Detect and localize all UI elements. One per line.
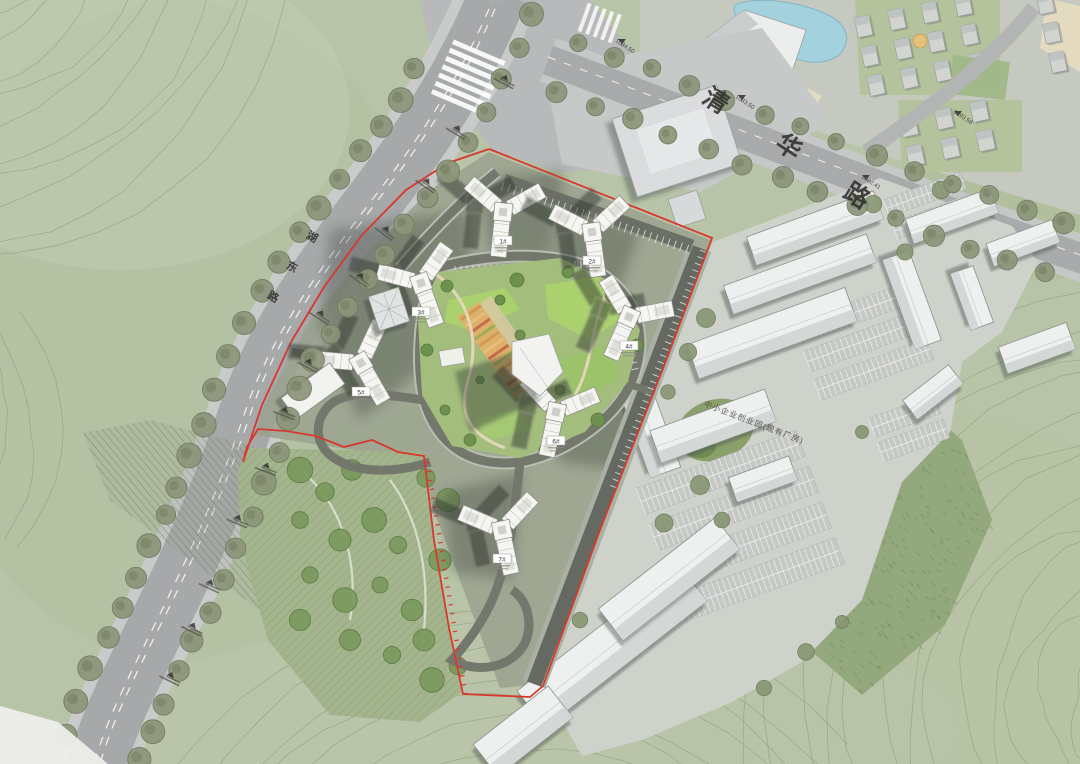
boundary-tick — [443, 569, 447, 570]
tower-id-label: 2# — [588, 259, 596, 266]
tower-core-roof — [497, 525, 506, 534]
boundary-tick — [430, 489, 434, 490]
tree-shade — [184, 633, 194, 643]
boundary-tick — [441, 560, 445, 561]
tower-micro-text — [415, 321, 427, 322]
tree-icon — [798, 644, 815, 661]
tree-shade — [810, 185, 819, 194]
tree-icon — [292, 512, 309, 529]
tree-shade — [626, 112, 635, 121]
boundary-tick — [448, 604, 452, 605]
boundary-tick — [457, 658, 461, 659]
site-plan-canvas: 1#2#3#4#5#6#7# 清 华 路 湖 东 路 中小企业创业园(现有厂房)… — [0, 0, 1080, 764]
master-plan-map: 1#2#3#4#5#6#7# 清 华 路 湖 东 路 中小企业创业园(现有厂房)… — [0, 0, 1080, 764]
tree-icon — [389, 536, 406, 553]
tree-shade — [662, 129, 670, 137]
tree-shade — [964, 243, 972, 251]
tree-shade — [271, 255, 281, 265]
tree-shade — [890, 213, 897, 220]
tree-icon — [413, 629, 435, 651]
tree-icon — [464, 434, 476, 446]
tree-shade — [589, 101, 597, 109]
tree-shade — [983, 189, 991, 197]
tree-icon — [316, 483, 334, 501]
tower-wing — [462, 211, 482, 249]
tree-shade — [129, 571, 139, 581]
tree-icon — [591, 413, 605, 427]
tree-icon — [329, 529, 351, 551]
tower-micro-text — [496, 568, 508, 569]
tree-icon — [362, 508, 387, 533]
tree-shade — [646, 63, 654, 71]
tree-shade — [869, 149, 879, 159]
tree-icon — [340, 630, 361, 651]
tree-icon — [287, 457, 313, 483]
tree-shade — [144, 724, 155, 735]
tree-shade — [759, 109, 767, 117]
tree-icon — [420, 668, 445, 693]
tree-icon — [897, 244, 913, 260]
tree-shade — [908, 165, 917, 174]
tower-id-label: 6# — [552, 439, 560, 446]
boundary-tick — [438, 542, 442, 543]
tree-shade — [735, 158, 744, 167]
boundary-tick — [425, 462, 429, 463]
tree-icon — [421, 344, 433, 356]
tree-shade — [340, 301, 349, 310]
tree-icon — [441, 280, 453, 292]
tree-icon — [333, 588, 358, 613]
tree-shade — [115, 601, 125, 611]
tree-shade — [217, 573, 226, 582]
tree-shade — [333, 173, 342, 182]
tree-icon — [679, 343, 696, 360]
tree-shade — [206, 382, 216, 392]
tree-shade — [513, 42, 522, 51]
tree-shade — [1020, 204, 1029, 213]
tree-icon — [510, 273, 524, 287]
tree-shade — [67, 694, 78, 705]
tree-shade — [272, 446, 281, 455]
tree-shade — [169, 481, 179, 491]
tree-icon — [855, 425, 868, 438]
tree-shade — [247, 510, 256, 519]
boundary-tick — [444, 578, 448, 579]
tree-shade — [397, 218, 406, 227]
tree-shade — [220, 349, 231, 360]
tower-id-label: 1# — [499, 239, 507, 246]
tower-core-roof — [499, 208, 508, 217]
tower-micro-text — [584, 267, 600, 268]
boundary-tick — [428, 480, 432, 481]
boundary-tick — [454, 640, 458, 641]
tree-shade — [702, 143, 711, 152]
tree-shade — [420, 191, 429, 200]
tree-icon — [714, 512, 730, 528]
tree-icon — [691, 476, 710, 495]
tower-micro-text — [495, 247, 511, 248]
tree-shade — [480, 106, 489, 115]
tree-shade — [776, 170, 786, 180]
tree-shade — [181, 447, 192, 458]
tree-shade — [101, 630, 111, 640]
tree-shade — [291, 380, 302, 391]
tree-icon — [495, 295, 505, 305]
tower-id-label: 4# — [625, 344, 633, 351]
tree-shade — [255, 475, 266, 486]
boundary-tick — [463, 693, 467, 694]
boundary-tick — [462, 684, 466, 685]
tree-shade — [156, 698, 166, 708]
tree-shade — [159, 508, 168, 517]
boundary-tick — [446, 587, 450, 588]
tree-shade — [228, 541, 237, 550]
tree-shade — [131, 752, 141, 762]
tower-micro-text — [497, 250, 509, 251]
tree-shade — [203, 606, 213, 616]
boundary-tick — [434, 516, 438, 517]
tree-shade — [523, 6, 534, 17]
tower-micro-text — [494, 565, 510, 566]
tree-icon — [515, 330, 525, 340]
courtyard-feature — [913, 34, 927, 48]
tree-icon — [835, 615, 848, 628]
boundary-tick — [460, 676, 464, 677]
tree-icon — [302, 567, 318, 583]
tree-shade — [946, 179, 954, 187]
tower-micro-text — [548, 447, 564, 448]
tree-icon — [756, 680, 771, 695]
tower-id-label: 5# — [357, 390, 365, 397]
tree-shade — [682, 79, 691, 88]
tower-micro-text — [621, 352, 637, 353]
tree-shade — [236, 315, 246, 325]
tower-core-roof — [587, 227, 596, 236]
tower-id-label: 3# — [417, 310, 425, 317]
tree-icon — [572, 612, 587, 627]
tree-shade — [572, 38, 580, 46]
tree-shade — [310, 200, 321, 211]
tree-shade — [440, 164, 450, 174]
tree-shade — [607, 51, 616, 60]
tree-shade — [293, 225, 302, 234]
tree-icon — [655, 514, 673, 532]
tree-shade — [1038, 266, 1046, 274]
tree-icon — [697, 309, 716, 328]
tower-micro-text — [355, 401, 367, 402]
tree-icon — [383, 646, 400, 663]
tree-shade — [392, 92, 403, 103]
tower-id-label: 7# — [498, 557, 506, 564]
tree-shade — [549, 85, 558, 94]
tower-micro-text — [413, 318, 429, 319]
tree-shade — [81, 660, 92, 671]
boundary-tick — [456, 649, 460, 650]
tree-shade — [830, 136, 837, 143]
tree-shade — [926, 229, 936, 239]
tree-shade — [407, 62, 416, 71]
tree-shade — [1056, 216, 1066, 226]
tree-shade — [374, 119, 384, 129]
tree-icon — [440, 405, 450, 415]
boundary-tick — [450, 613, 454, 614]
tree-shade — [324, 328, 333, 337]
tree-icon — [401, 599, 422, 620]
tree-shade — [353, 143, 363, 153]
tower-micro-text — [623, 355, 635, 356]
tree-shade — [195, 417, 206, 428]
boundary-tick — [453, 631, 457, 632]
tower-core-roof — [551, 407, 560, 416]
boundary-tick — [435, 525, 439, 526]
boundary-tick — [459, 667, 463, 668]
tree-icon — [661, 385, 676, 400]
tree-icon — [372, 577, 388, 593]
boundary-tick — [451, 622, 455, 623]
tree-shade — [1000, 254, 1009, 263]
tree-shade — [378, 249, 387, 258]
tower-wing-body — [462, 211, 482, 249]
boundary-tick — [440, 551, 444, 552]
tree-shade — [254, 283, 264, 293]
boundary-tick — [427, 471, 431, 472]
tree-shade — [794, 121, 802, 129]
tree-shade — [172, 664, 181, 673]
tower-micro-text — [353, 398, 369, 399]
tower-micro-text — [550, 450, 562, 451]
tree-icon — [289, 609, 310, 630]
boundary-tick — [437, 533, 441, 534]
tree-shade — [141, 538, 152, 549]
boundary-tick — [447, 596, 451, 597]
